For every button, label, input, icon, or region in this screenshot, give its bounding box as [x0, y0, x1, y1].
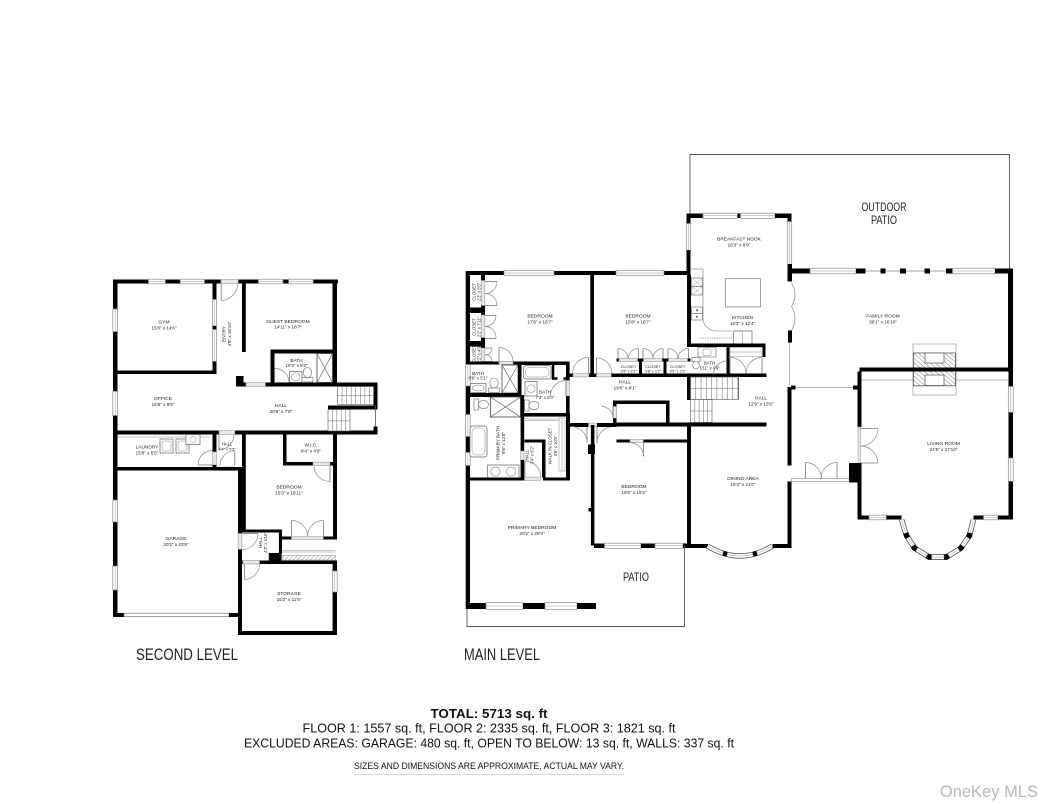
svg-text:5'11" x 4'9": 5'11" x 4'9"	[700, 366, 720, 371]
svg-text:20'6" x 7'8": 20'6" x 7'8"	[270, 409, 293, 414]
svg-text:20'2" x 23'9": 20'2" x 23'9"	[163, 542, 189, 547]
svg-text:OneKey MLS: OneKey MLS	[940, 783, 1038, 801]
svg-text:TOTAL: 5713 sq. ft: TOTAL: 5713 sq. ft	[431, 706, 549, 721]
svg-text:15'8" x 5'5": 15'8" x 5'5"	[136, 450, 159, 455]
svg-text:15'3" x 11'6": 15'3" x 11'6"	[277, 597, 302, 602]
svg-text:2'2" x 4'9": 2'2" x 4'9"	[477, 344, 482, 363]
svg-text:CLOSET: CLOSET	[621, 364, 637, 369]
svg-text:3'8" x 2'2": 3'8" x 2'2"	[645, 370, 662, 374]
svg-text:8'6" x 13'5": 8'6" x 13'5"	[501, 432, 506, 454]
svg-text:16'3" x 12'4": 16'3" x 12'4"	[730, 321, 756, 326]
svg-text:OUTDOOR: OUTDOOR	[862, 200, 907, 214]
svg-text:8'6" x 5'1": 8'6" x 5'1"	[469, 376, 488, 381]
svg-text:17'6" x 16'7": 17'6" x 16'7"	[527, 319, 553, 324]
svg-text:WALK IN CLOSET: WALK IN CLOSET	[548, 427, 553, 464]
svg-text:4'8" x 16'10": 4'8" x 16'10"	[227, 321, 232, 346]
svg-text:12'9" x 13'5": 12'9" x 13'5"	[748, 401, 774, 406]
svg-text:EXCLUDED AREAS: GARAGE: 480 sq: EXCLUDED AREAS: GARAGE: 480 sq. ft, OPEN…	[244, 737, 735, 751]
svg-text:15'8" x 16'7": 15'8" x 16'7"	[625, 319, 651, 324]
svg-text:36'1" x 16'10": 36'1" x 16'10"	[869, 319, 897, 324]
svg-text:SIZES AND DIMENSIONS ARE APPRO: SIZES AND DIMENSIONS ARE APPROXIMATE, AC…	[354, 761, 624, 771]
svg-text:CLOSET: CLOSET	[645, 364, 661, 369]
svg-text:7'3" x 6'0": 7'3" x 6'0"	[536, 395, 555, 400]
svg-text:2'2" x 5'5": 2'2" x 5'5"	[477, 282, 482, 301]
svg-text:CLOSET: CLOSET	[670, 364, 686, 369]
svg-text:20'2" x 29'4": 20'2" x 29'4"	[519, 531, 545, 536]
svg-text:16'3" x 21'0": 16'3" x 21'0"	[730, 482, 756, 487]
svg-text:BATH: BATH	[290, 358, 302, 363]
svg-text:BATH: BATH	[539, 390, 551, 395]
svg-text:PATIO: PATIO	[623, 572, 649, 584]
svg-text:15'5" x 19'2": 15'5" x 19'2"	[621, 490, 647, 495]
svg-text:ENTRY: ENTRY	[222, 325, 227, 342]
svg-text:10'3" x 5'3": 10'3" x 5'3"	[285, 363, 308, 368]
svg-text:3'8" x 10'5": 3'8" x 10'5"	[553, 435, 558, 456]
svg-text:3'5" x 2'2": 3'5" x 2'2"	[669, 370, 686, 374]
svg-text:8'4" x 4'9": 8'4" x 4'9"	[301, 448, 321, 453]
svg-text:3'4" x 6'2": 3'4" x 6'2"	[530, 445, 535, 464]
svg-text:PRIMARY BATH: PRIMARY BATH	[496, 426, 501, 460]
svg-text:3'9" x 2'2": 3'9" x 2'2"	[620, 370, 637, 374]
svg-text:MAIN LEVEL: MAIN LEVEL	[464, 646, 540, 664]
svg-text:15'8" x 9'9": 15'8" x 9'9"	[152, 402, 175, 407]
svg-text:19'6" x 8'1": 19'6" x 8'1"	[614, 385, 637, 390]
svg-text:4'3" x 4'10": 4'3" x 4'10"	[263, 532, 268, 553]
svg-text:24'5" x 27'10": 24'5" x 27'10"	[930, 447, 958, 452]
svg-text:FLOOR 1: 1557 sq. ft, FLOOR 2:: FLOOR 1: 1557 sq. ft, FLOOR 2: 2335 sq. …	[303, 722, 677, 736]
svg-text:14'11" x 16'7": 14'11" x 16'7"	[274, 325, 302, 330]
svg-text:15'8" x 14'6": 15'8" x 14'6"	[151, 325, 177, 330]
svg-text:SECOND LEVEL: SECOND LEVEL	[136, 646, 238, 664]
svg-text:15'3" x 16'11": 15'3" x 16'11"	[275, 490, 303, 495]
svg-text:16'3" x 8'9": 16'3" x 8'9"	[728, 242, 751, 247]
svg-text:2'2" x 7'11": 2'2" x 7'11"	[477, 316, 482, 337]
svg-text:PATIO: PATIO	[871, 213, 897, 227]
